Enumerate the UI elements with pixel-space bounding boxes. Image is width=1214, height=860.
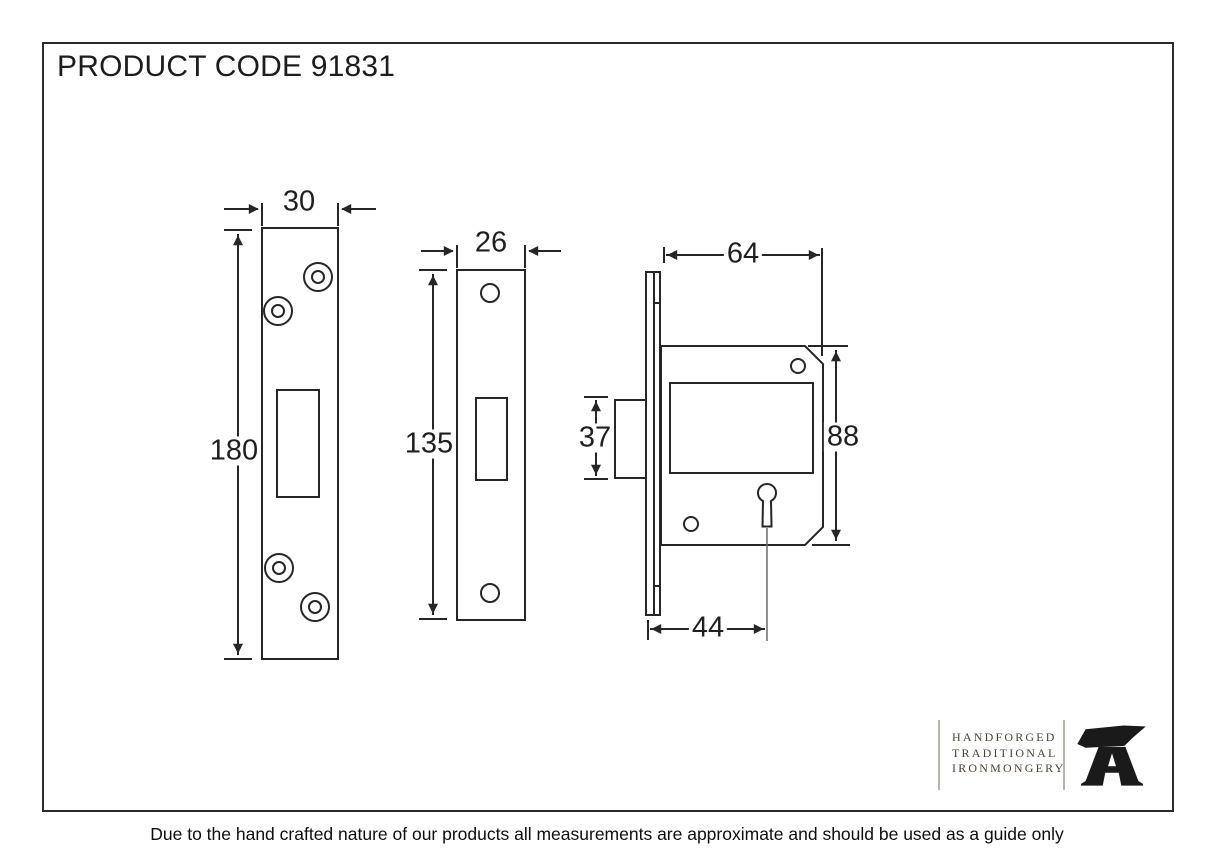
lock-case-view (584, 247, 850, 641)
screw-hole (264, 297, 292, 325)
screw-hole (301, 593, 329, 621)
screw-hole (304, 263, 332, 291)
brand-wordmark: HANDFORGED TRADITIONAL IRONMONGERY (952, 730, 1066, 777)
strike-plate-outline (262, 228, 338, 659)
faceplate-cutout (476, 398, 507, 480)
deadbolt (615, 400, 646, 478)
dim-label-faceplate-height: 135 (402, 430, 456, 459)
lock-case-outline (661, 346, 823, 545)
lever-pack-window (670, 383, 813, 473)
brand-line-3: IRONMONGERY (952, 761, 1066, 777)
screw-hole (481, 584, 499, 602)
dim-label-faceplate-width: 26 (472, 229, 510, 258)
brand-divider (938, 720, 940, 790)
brand-line-1: HANDFORGED (952, 730, 1066, 746)
dim-label-case-height: 88 (824, 423, 862, 452)
dim-label-case-depth: 64 (724, 240, 762, 269)
dim-label-backset: 44 (689, 614, 727, 643)
fixing-hole (684, 517, 698, 531)
dim-label-bolt-height: 37 (576, 424, 614, 453)
brand-line-2: TRADITIONAL (952, 746, 1066, 762)
dim-label-strike-width: 30 (280, 188, 318, 217)
keyhole (758, 484, 776, 527)
anvil-icon (1072, 720, 1152, 794)
screw-hole (481, 284, 499, 302)
brand-block: HANDFORGED TRADITIONAL IRONMONGERY (938, 718, 1148, 792)
brand-divider (1063, 720, 1065, 790)
screw-hole (265, 554, 293, 582)
dim-label-strike-height: 180 (207, 437, 261, 466)
product-drawing-page: PRODUCT CODE 91831 (0, 0, 1214, 860)
strike-plate-cutout (277, 390, 319, 497)
faceplate-outline (457, 270, 525, 620)
fixing-hole (791, 359, 805, 373)
strike-plate-view (224, 203, 376, 659)
